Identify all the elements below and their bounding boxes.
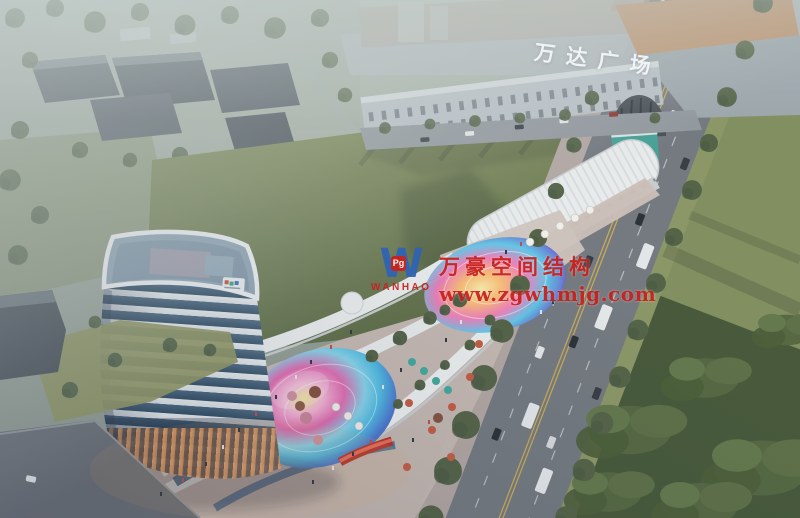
wanhao-logo: W Pg WANHAO <box>371 247 429 293</box>
watermark-text: 万豪空间结构 www.zgwhmjg.com <box>439 247 656 306</box>
logo-badge: Pg <box>391 256 406 271</box>
watermark-company-name: 万豪空间结构 <box>439 251 656 281</box>
watermark-website: www.zgwhmjg.com <box>439 282 656 306</box>
logo-name: WANHAO <box>371 282 429 293</box>
watermark: W Pg WANHAO 万豪空间结构 www.zgwhmjg.com <box>371 247 656 306</box>
rendering-stage: 万达广场 W Pg WANHAO 万豪空间结构 www.zgwhmjg.com <box>0 0 800 518</box>
